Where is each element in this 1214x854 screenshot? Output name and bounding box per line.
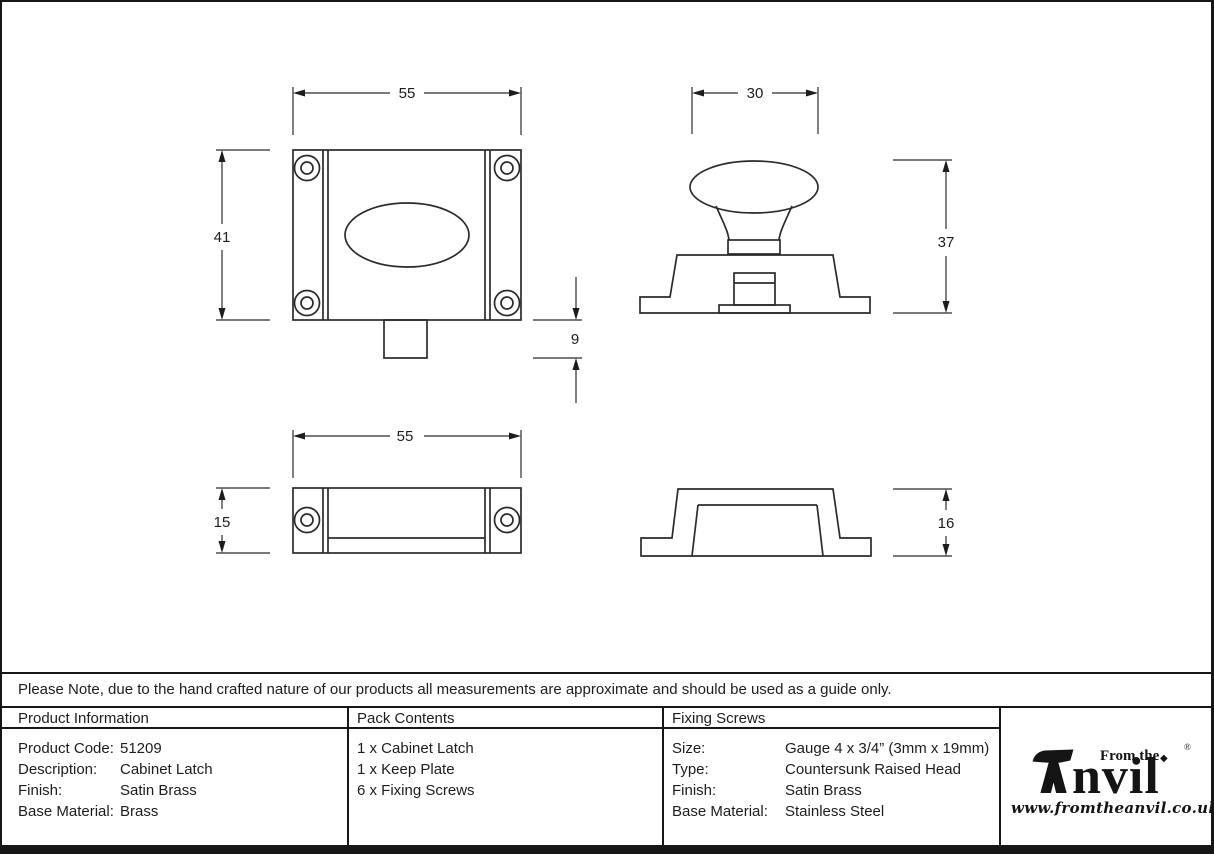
spec-value: 51209 <box>120 740 162 758</box>
page-border-bottom <box>0 845 1214 854</box>
spec-value: Gauge 4 x 3/4” (3mm x 19mm) <box>785 740 989 758</box>
dim-keep-side-height: 16 <box>938 515 955 532</box>
spec-label: Base Material: <box>672 803 768 821</box>
dimension-lines-latch-front <box>216 87 582 403</box>
spec-label: Finish: <box>18 782 62 800</box>
pack-item: 1 x Keep Plate <box>357 761 455 779</box>
product-information-header: Product Information <box>18 710 149 728</box>
note-row-divider <box>0 672 1214 674</box>
latch-side-drawing <box>640 161 870 313</box>
dim-latch-height: 41 <box>214 229 231 246</box>
dimension-lines-keep-front <box>216 430 521 553</box>
table-top-divider <box>0 706 1214 708</box>
anvil-icon <box>1032 744 1074 798</box>
spec-label: Finish: <box>672 782 716 800</box>
spec-label: Size: <box>672 740 705 758</box>
spec-value: Brass <box>120 803 158 821</box>
table-header-divider <box>0 727 1001 729</box>
dimension-arrows-keep-front <box>219 433 522 554</box>
spec-value: Cabinet Latch <box>120 761 213 779</box>
spec-value: Satin Brass <box>785 782 862 800</box>
spec-value: Countersunk Raised Head <box>785 761 961 779</box>
fixing-screws-header: Fixing Screws <box>672 710 765 728</box>
pack-item: 1 x Cabinet Latch <box>357 740 474 758</box>
column-divider-3 <box>999 706 1001 845</box>
registered-trademark-icon: ® <box>1184 742 1191 752</box>
dim-keep-width: 55 <box>397 428 414 445</box>
keep-front-drawing <box>293 488 521 553</box>
spec-value: Satin Brass <box>120 782 197 800</box>
dim-keep-height: 15 <box>214 514 231 531</box>
technical-drawings: 55 41 9 30 37 55 15 <box>0 0 1214 854</box>
keep-side-drawing <box>641 489 871 556</box>
spec-sheet-page: 55 41 9 30 37 55 15 <box>0 0 1214 854</box>
dimension-arrows-latch-side <box>692 90 950 314</box>
diamond-icon: ◆ <box>1160 753 1168 764</box>
spec-label: Description: <box>18 761 97 779</box>
measurement-note: Please Note, due to the hand crafted nat… <box>18 681 892 699</box>
brand-prefix: From the <box>1100 748 1159 765</box>
dim-latch-side-height: 37 <box>938 234 955 251</box>
dim-knob-width: 30 <box>747 85 764 102</box>
dim-latch-width: 55 <box>399 85 416 102</box>
spec-value: Stainless Steel <box>785 803 884 821</box>
column-divider-1 <box>347 706 349 845</box>
pack-item: 6 x Fixing Screws <box>357 782 475 800</box>
spec-label: Type: <box>672 761 709 779</box>
spec-label: Product Code: <box>18 740 114 758</box>
brand-url: www.fromtheanvil.co.uk <box>1011 799 1195 817</box>
pack-contents-header: Pack Contents <box>357 710 455 728</box>
column-divider-2 <box>662 706 664 845</box>
spec-label: Base Material: <box>18 803 114 821</box>
dimension-arrows-latch-front <box>219 90 580 371</box>
latch-front-drawing <box>293 150 521 358</box>
page-border-left <box>0 0 2 854</box>
dim-latch-bolt: 9 <box>571 331 579 348</box>
dimension-lines-latch-side <box>692 87 952 313</box>
page-border-top <box>0 0 1214 2</box>
